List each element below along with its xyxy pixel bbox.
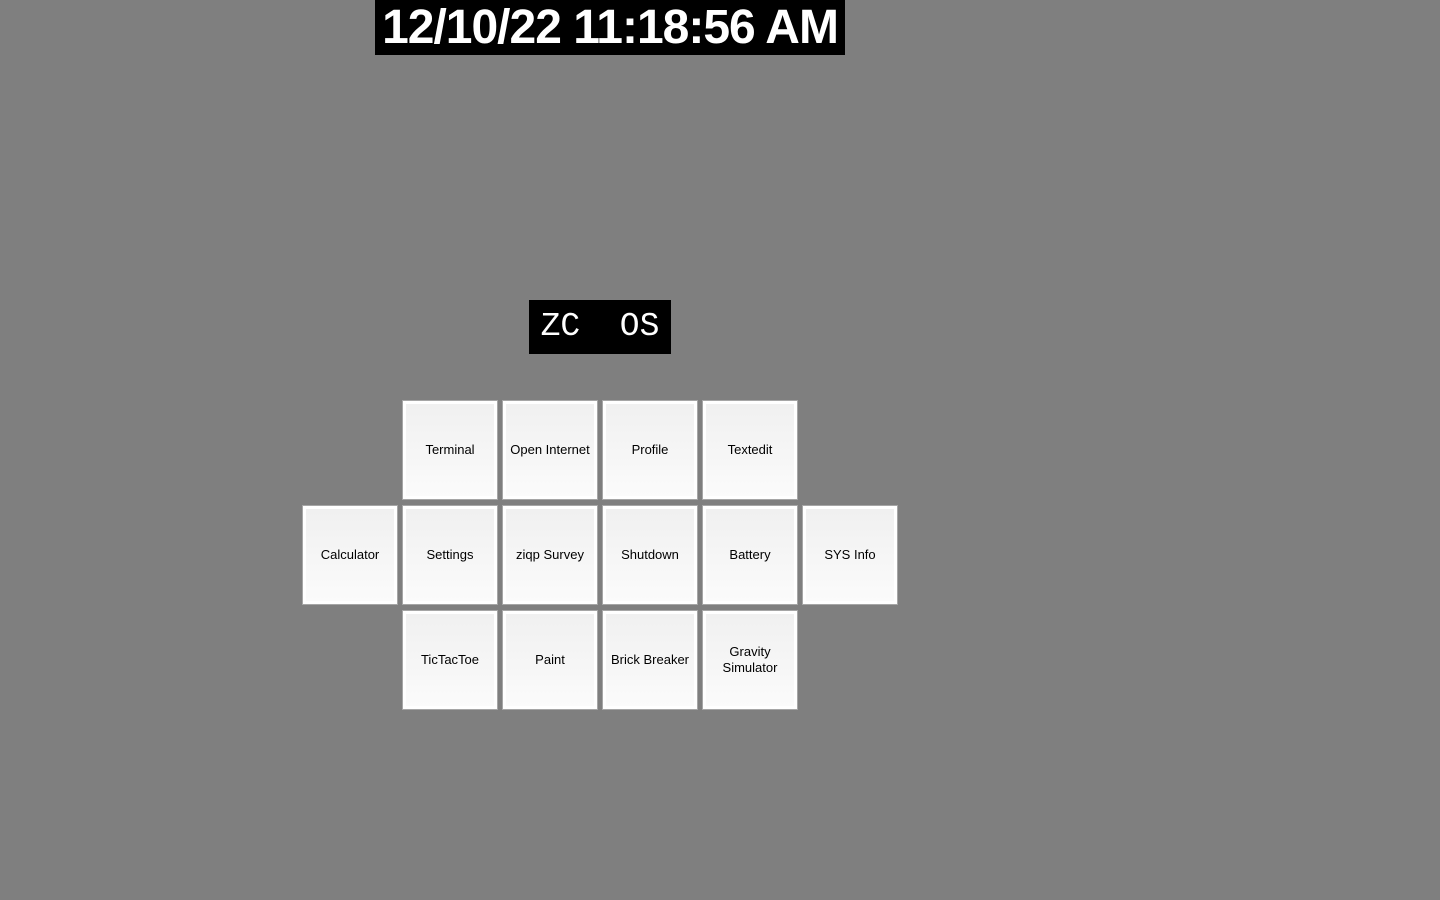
app-grid-row: TerminalOpen InternetProfileTextedit	[403, 401, 797, 499]
app-tile-label: Open Internet	[510, 442, 590, 458]
app-tile-profile[interactable]: Profile	[603, 401, 697, 499]
app-tile-settings[interactable]: Settings	[403, 506, 497, 604]
app-tile-label: Brick Breaker	[611, 652, 689, 668]
app-tile-label: Battery	[729, 547, 770, 563]
app-grid-row: TicTacToePaintBrick BreakerGravity Simul…	[403, 611, 797, 709]
app-tile-shutdown[interactable]: Shutdown	[603, 506, 697, 604]
app-tile-label: TicTacToe	[421, 652, 479, 668]
os-logo: ZC OS	[529, 300, 672, 354]
app-tile-textedit[interactable]: Textedit	[703, 401, 797, 499]
app-tile-open-internet[interactable]: Open Internet	[503, 401, 597, 499]
app-tile-terminal[interactable]: Terminal	[403, 401, 497, 499]
app-tile-calculator[interactable]: Calculator	[303, 506, 397, 604]
app-grid-row: CalculatorSettingsziqp SurveyShutdownBat…	[303, 506, 897, 604]
app-tile-label: Gravity Simulator	[709, 644, 791, 676]
app-grid: TerminalOpen InternetProfileTexteditCalc…	[0, 401, 1200, 709]
datetime-clock: 12/10/22 11:18:56 AM	[375, 0, 845, 55]
app-tile-label: Terminal	[425, 442, 474, 458]
app-tile-battery[interactable]: Battery	[703, 506, 797, 604]
app-tile-label: Profile	[632, 442, 669, 458]
app-tile-label: Shutdown	[621, 547, 679, 563]
desktop: 12/10/22 11:18:56 AM ZC OS TerminalOpen …	[0, 0, 1200, 900]
app-tile-sys-info[interactable]: SYS Info	[803, 506, 897, 604]
app-tile-ziqp-survey[interactable]: ziqp Survey	[503, 506, 597, 604]
app-tile-paint[interactable]: Paint	[503, 611, 597, 709]
app-tile-gravity-simulator[interactable]: Gravity Simulator	[703, 611, 797, 709]
clock-row: 12/10/22 11:18:56 AM	[0, 0, 1200, 55]
app-tile-label: Textedit	[728, 442, 773, 458]
app-tile-brick-breaker[interactable]: Brick Breaker	[603, 611, 697, 709]
app-tile-label: Paint	[535, 652, 565, 668]
app-tile-label: ziqp Survey	[516, 547, 584, 563]
app-tile-tictactoe[interactable]: TicTacToe	[403, 611, 497, 709]
app-tile-label: SYS Info	[824, 547, 875, 563]
app-tile-label: Settings	[427, 547, 474, 563]
app-tile-label: Calculator	[321, 547, 380, 563]
logo-row: ZC OS	[0, 300, 1200, 354]
